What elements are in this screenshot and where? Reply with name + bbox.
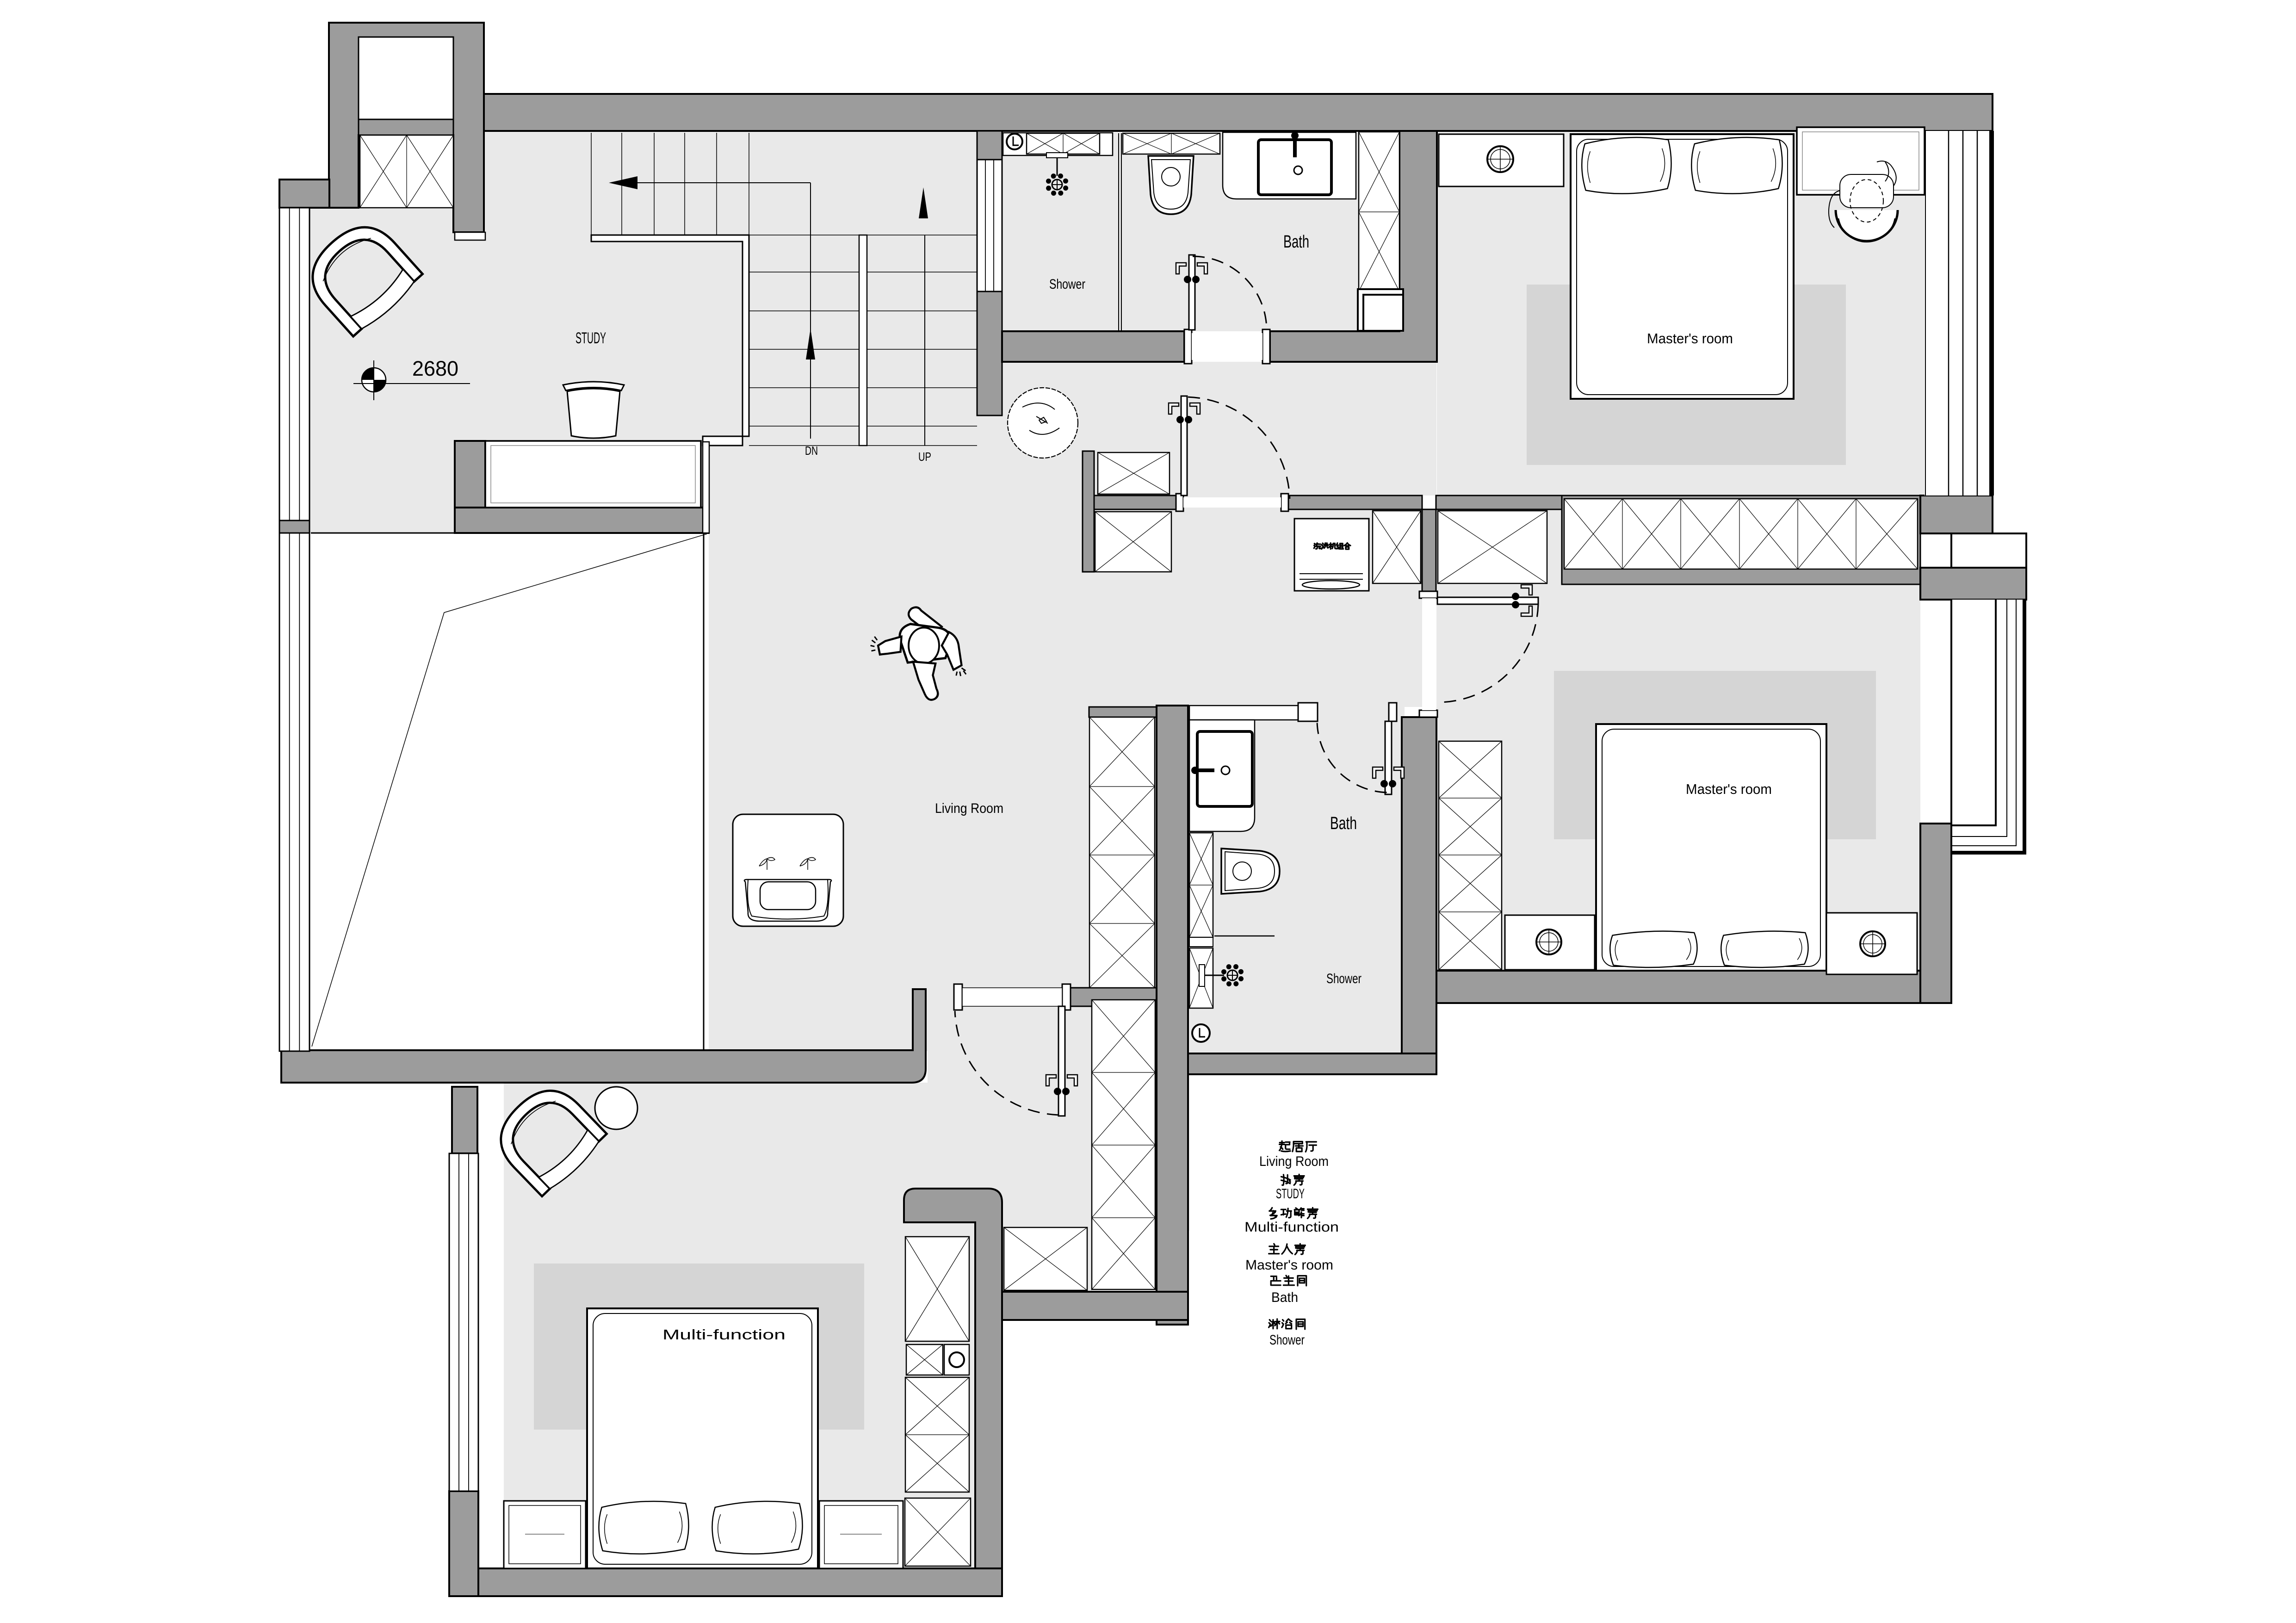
svg-text:Shower: Shower (1269, 1332, 1305, 1348)
svg-text:2680: 2680 (412, 357, 458, 380)
svg-text:UP: UP (918, 450, 931, 464)
svg-text:Bath: Bath (1271, 1290, 1298, 1305)
svg-text:STUDY: STUDY (576, 329, 606, 347)
svg-text:DN: DN (805, 444, 818, 458)
svg-text:Living Room: Living Room (1259, 1154, 1329, 1169)
svg-text:Master's room: Master's room (1647, 330, 1733, 347)
svg-text:Master's room: Master's room (1245, 1258, 1333, 1273)
svg-text:Bath: Bath (1283, 232, 1309, 252)
svg-text:Living Room: Living Room (935, 801, 1003, 816)
svg-text:STUDY: STUDY (1276, 1186, 1305, 1202)
svg-text:Multi-function: Multi-function (662, 1326, 786, 1343)
svg-text:Shower: Shower (1326, 971, 1362, 986)
svg-text:Master's room: Master's room (1686, 781, 1772, 797)
svg-text:Shower: Shower (1049, 277, 1085, 292)
svg-text:Multi-function: Multi-function (1244, 1220, 1339, 1235)
svg-text:Bath: Bath (1330, 814, 1357, 833)
